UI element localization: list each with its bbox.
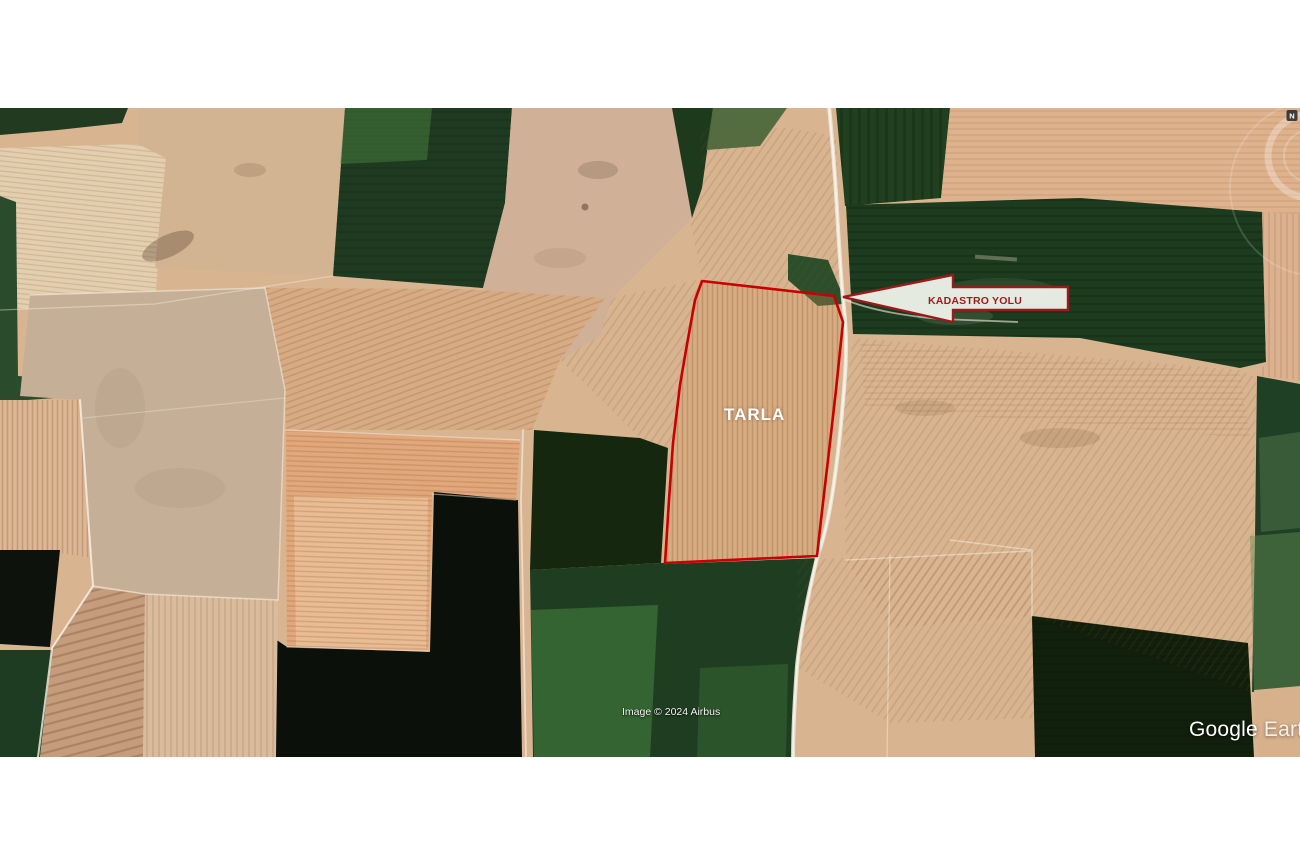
terrain-smudge (895, 400, 955, 416)
field-texture (294, 496, 428, 648)
field-polygon (1254, 686, 1300, 757)
field-texture (0, 144, 166, 310)
field-texture (941, 108, 1300, 214)
field-texture (1250, 532, 1300, 690)
field-polygon (0, 550, 60, 647)
field-texture (340, 108, 432, 164)
terrain-smudge (578, 161, 618, 179)
terrain-smudge (582, 204, 589, 211)
field-texture (1259, 432, 1300, 532)
field-polygon (530, 430, 668, 570)
compass-north-label: N (1289, 112, 1294, 121)
field-texture (0, 400, 92, 558)
terrain-smudge (95, 368, 145, 448)
screenshot-canvas: N KADASTRO YOLU TARLA Image © 2024 Airbu… (0, 0, 1300, 866)
field-texture (836, 108, 950, 206)
terrain-smudge (1020, 428, 1100, 448)
arrow-label: KADASTRO YOLU (928, 295, 1022, 307)
field-texture (531, 605, 658, 757)
field-texture (697, 664, 788, 757)
field-texture (690, 128, 843, 294)
terrain-smudge (534, 248, 586, 268)
google-earth-map[interactable]: N KADASTRO YOLU TARLA Image © 2024 Airbu… (0, 108, 1300, 757)
terrain-smudge (135, 468, 225, 508)
satellite-imagery: N KADASTRO YOLU (0, 108, 1300, 757)
field-texture (143, 594, 278, 757)
terrain-smudge (234, 163, 266, 177)
